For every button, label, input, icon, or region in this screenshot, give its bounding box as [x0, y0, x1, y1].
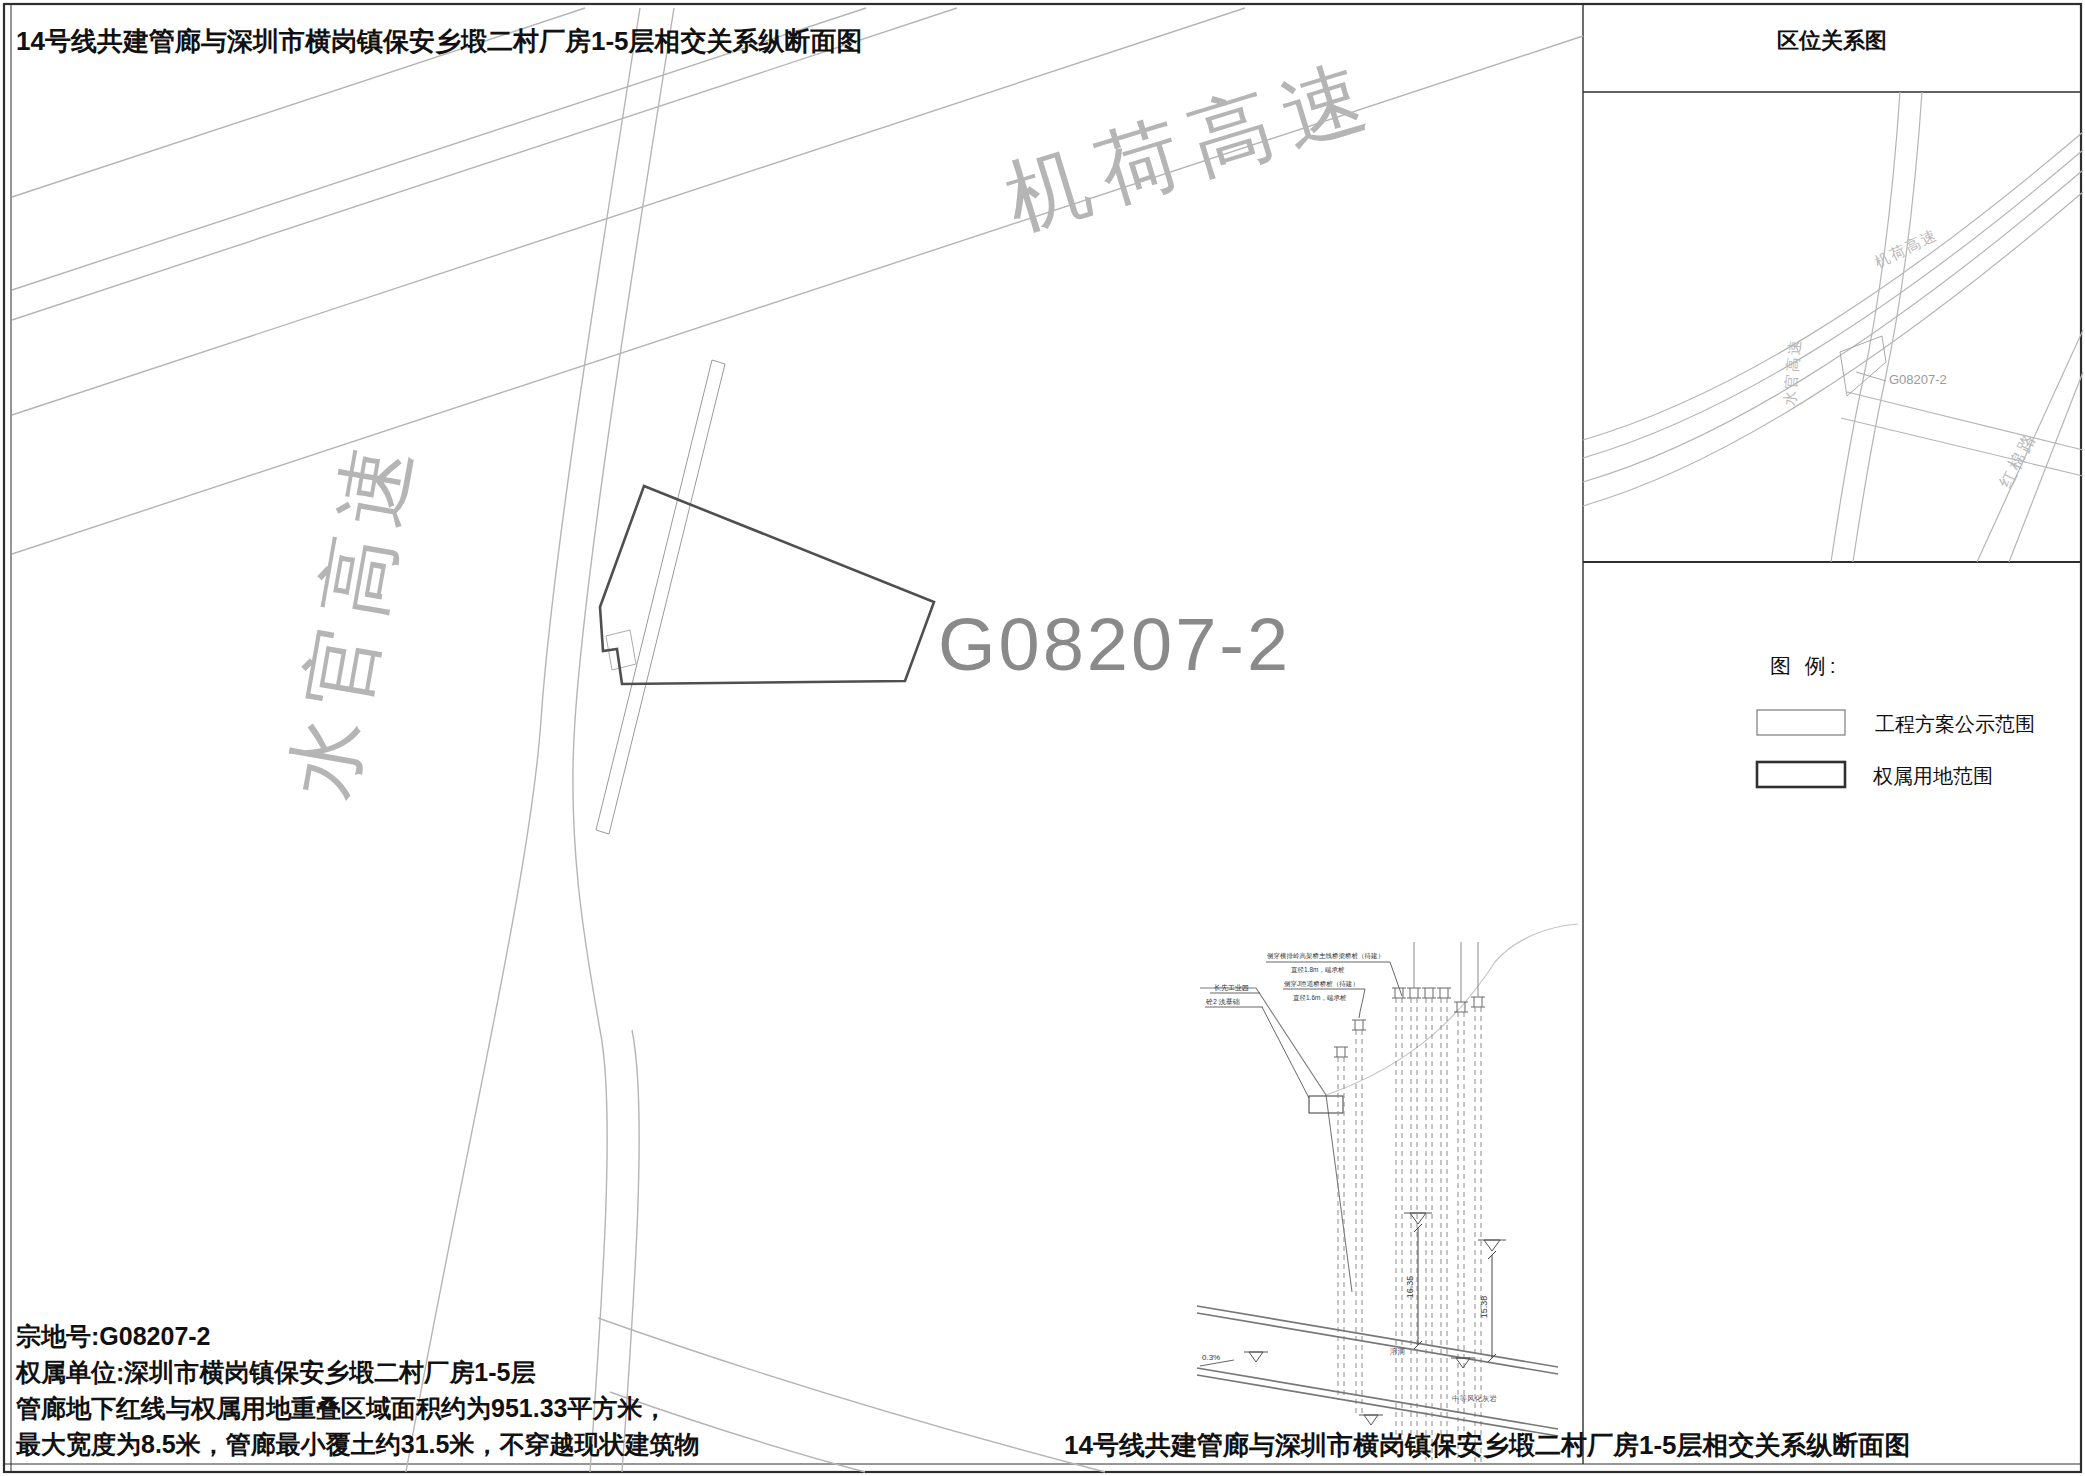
note-line: 宗地号:G08207-2 [16, 1318, 699, 1354]
minimap-parcel [1840, 336, 1886, 396]
section-pile-note-2b: 直径1.6m，端承桩 [1293, 995, 1346, 1002]
section-pile-note-1b: 直径1.8m，端承桩 [1291, 967, 1344, 974]
section-dimension-left: 16.35 [1406, 1276, 1415, 1299]
legend-swatches [1757, 710, 1845, 787]
pier-caps [1334, 988, 1485, 1057]
legend-item-label: 权属用地范围 [1873, 766, 1993, 786]
note-line: 管廊地下红线与权属用地重叠区域面积约为951.33平方米， [16, 1390, 699, 1426]
corridor-strip [596, 360, 725, 834]
legend-item-label: 工程方案公示范围 [1875, 714, 2035, 734]
minimap-title: 区位关系图 [1583, 30, 2081, 52]
note-line: 最大宽度为8.5米，管廊最小覆土约31.5米，不穿越现状建筑物 [16, 1426, 699, 1462]
minimap-parcel-code: G08207-2 [1889, 373, 1947, 386]
parcel-notes: 宗地号:G08207-2 权属单位:深圳市横岗镇保安乡塅二村厂房1-5层 管廊地… [16, 1318, 699, 1462]
section-terrain [1200, 924, 1578, 1292]
section-slope-label: 0.3% [1202, 1354, 1220, 1362]
legend-swatch-thick [1757, 762, 1845, 787]
drawing-sheet: 14号线共建管廊与深圳市横岗镇保安乡塅二村厂房1-5层相交关系纵断面图 机荷高速… [0, 0, 2085, 1476]
section-park-name: 长先工业园 [1214, 984, 1249, 991]
parcel-boundary [600, 486, 934, 684]
sheet-title-bottom: 14号线共建管廊与深圳市横岗镇保安乡塅二村厂房1-5层相交关系纵断面图 [1064, 1432, 1911, 1458]
section-pile-note-1a: 侧穿横排岭高架桥主线桥梁桥桩（待建） [1267, 953, 1384, 960]
legend-swatch-thin [1757, 710, 1845, 735]
section-pile-note-2a: 侧穿J匝道桥桥桩（待建） [1284, 981, 1359, 988]
section-cave-label: 溶洞 [1390, 1348, 1405, 1356]
parcel-code-label: G08207-2 [938, 608, 1291, 682]
minimap-roads [1583, 92, 2083, 562]
section-park-foundation: 砼2 浅基础 [1206, 998, 1240, 1005]
sheet-title-top: 14号线共建管廊与深圳市横岗镇保安乡塅二村厂房1-5层相交关系纵断面图 [16, 28, 863, 54]
legend-title: 图 例: [1770, 655, 1840, 676]
section-rock-label: 中等风化灰岩 [1452, 1395, 1497, 1403]
bridge-piles [1338, 998, 1481, 1462]
section-dimension-right: 15.38 [1480, 1296, 1489, 1319]
note-line: 权属单位:深圳市横岗镇保安乡塅二村厂房1-5层 [16, 1354, 699, 1390]
section-annotation-leaders [1200, 962, 1402, 1366]
overhead-lines [1414, 942, 1478, 1002]
